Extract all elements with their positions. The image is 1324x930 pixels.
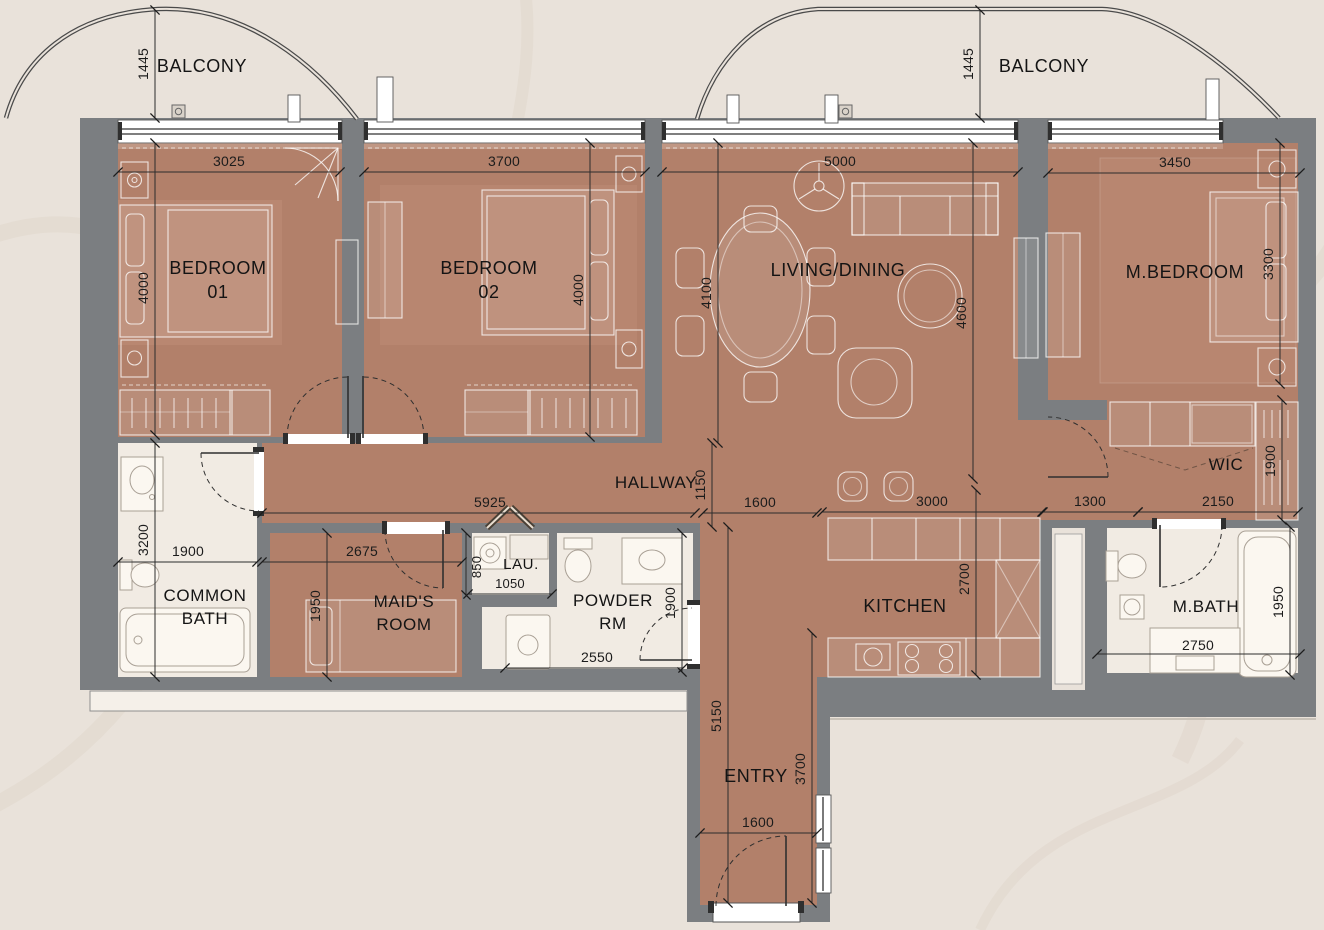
label-laundry: LAU. bbox=[503, 556, 539, 573]
dim-text: 850 bbox=[469, 556, 484, 578]
dim-text: 2675 bbox=[346, 543, 378, 559]
dim-text: 3025 bbox=[213, 153, 245, 169]
window-bedroom1 bbox=[118, 120, 342, 149]
door-post-icon bbox=[288, 95, 300, 122]
label-mbedroom: M.BEDROOM bbox=[1126, 262, 1244, 282]
label-maids-room-1: MAID'S bbox=[374, 592, 435, 611]
label-common-bath-1: COMMON bbox=[164, 586, 247, 605]
dim-text: 3450 bbox=[1159, 154, 1191, 170]
dim-text: 1445 bbox=[135, 48, 151, 80]
kitchen-counter-top bbox=[828, 518, 1040, 560]
label-entry: ENTRY bbox=[724, 766, 788, 786]
label-bedroom1: BEDROOM bbox=[169, 258, 266, 278]
dim-text: 2550 bbox=[581, 649, 613, 665]
drain-marker-icon bbox=[172, 105, 185, 118]
door-post-icon bbox=[727, 95, 739, 123]
toilet-tank bbox=[1106, 551, 1118, 581]
dim-text: 1900 bbox=[172, 543, 204, 559]
dim-text: 3300 bbox=[1260, 248, 1276, 280]
label-balcony-left: BALCONY bbox=[157, 56, 247, 76]
dim-text: 1600 bbox=[742, 814, 774, 830]
label-bedroom2-number: 02 bbox=[478, 282, 499, 302]
toilet-tank bbox=[120, 560, 132, 590]
dim-text: 1950 bbox=[307, 590, 323, 622]
door-post-icon bbox=[1206, 79, 1219, 120]
floor-plan-svg: 3025 3700 5000 3450 5925 1600 3000 1300 … bbox=[0, 0, 1324, 930]
label-wic: WIC bbox=[1209, 455, 1244, 474]
dim-text: 1600 bbox=[744, 494, 776, 510]
label-bedroom1-number: 01 bbox=[207, 282, 228, 302]
window-bedroom2 bbox=[364, 120, 645, 149]
dim-text: 3700 bbox=[792, 753, 808, 785]
void-panel bbox=[1055, 534, 1082, 684]
dim-text: 4000 bbox=[135, 272, 151, 304]
toilet-tank bbox=[564, 538, 592, 549]
label-balcony-right: BALCONY bbox=[999, 56, 1089, 76]
label-powder-1: POWDER bbox=[573, 591, 653, 610]
wic-shelf-top bbox=[1110, 402, 1255, 446]
toilet bbox=[1118, 554, 1146, 578]
window-mbedroom bbox=[1048, 120, 1223, 149]
label-mbath: M.BATH bbox=[1173, 597, 1240, 616]
label-maids-room-2: ROOM bbox=[376, 615, 431, 634]
dim-text: 1300 bbox=[1074, 493, 1106, 509]
dim-text: 4000 bbox=[570, 274, 586, 306]
shower-area bbox=[506, 615, 550, 669]
dim-text: 4100 bbox=[698, 277, 714, 309]
sofa bbox=[852, 183, 998, 235]
drain-marker-icon bbox=[839, 105, 852, 118]
label-kitchen: KITCHEN bbox=[863, 596, 946, 616]
label-living-dining: LIVING/DINING bbox=[771, 260, 906, 280]
dim-text: 5000 bbox=[824, 153, 856, 169]
dim-text: 1950 bbox=[1270, 586, 1286, 618]
floor-plan-page: 3025 3700 5000 3450 5925 1600 3000 1300 … bbox=[0, 0, 1324, 930]
dim-text: 5925 bbox=[474, 494, 506, 510]
powder-vanity bbox=[622, 538, 682, 584]
toilet bbox=[565, 550, 591, 582]
entry-side-wall bbox=[816, 690, 831, 922]
dim-text: 4600 bbox=[953, 297, 969, 329]
dim-text: 2150 bbox=[1202, 493, 1234, 509]
label-hallway: HALLWAY bbox=[615, 473, 697, 492]
corridor-floor bbox=[700, 523, 830, 677]
dim-text: 5150 bbox=[708, 700, 724, 732]
dim-text: 3200 bbox=[135, 524, 151, 556]
dim-text: 1900 bbox=[1262, 445, 1278, 477]
dim-text: 1050 bbox=[495, 576, 525, 591]
dim-text: 1445 bbox=[960, 48, 976, 80]
label-powder-2: RM bbox=[599, 614, 627, 633]
dim-text: 2750 bbox=[1182, 637, 1214, 653]
vanity-sink bbox=[121, 457, 163, 511]
dining-table bbox=[710, 213, 810, 367]
dim-text: 3700 bbox=[488, 153, 520, 169]
door-post-icon bbox=[825, 95, 838, 123]
door-post-icon bbox=[377, 77, 393, 122]
dim-text: 2700 bbox=[956, 563, 972, 595]
dim-text: 3000 bbox=[916, 493, 948, 509]
dim-text: 1900 bbox=[662, 587, 678, 619]
ledge-strip bbox=[90, 691, 687, 711]
label-common-bath-2: BATH bbox=[182, 609, 228, 628]
window-living bbox=[662, 120, 1018, 149]
label-bedroom2: BEDROOM bbox=[440, 258, 537, 278]
